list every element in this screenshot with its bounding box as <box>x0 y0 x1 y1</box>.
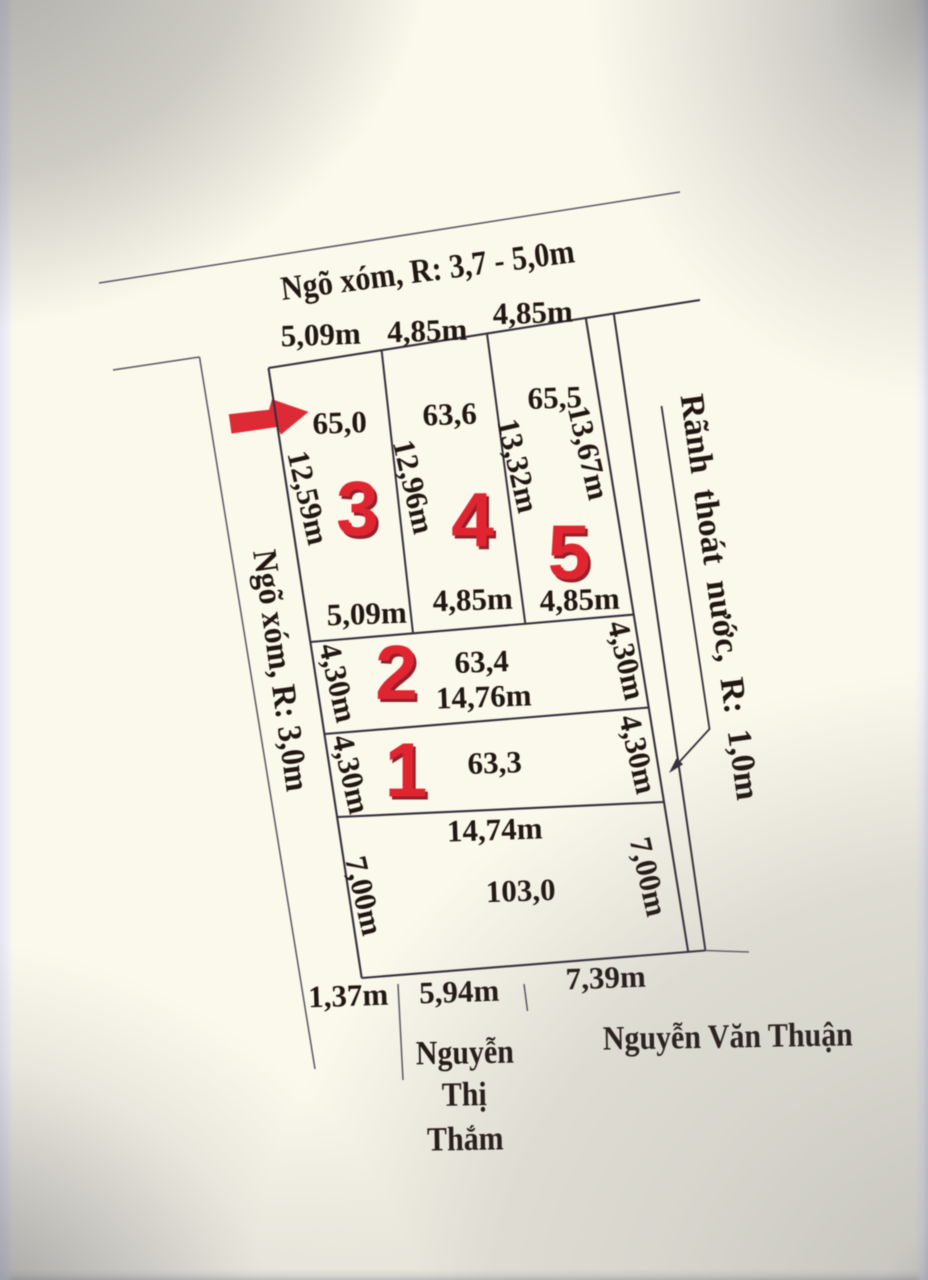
svg-text:2: 2 <box>375 630 418 716</box>
svg-text:12,96m: 12,96m <box>386 436 442 537</box>
svg-text:1,37m: 1,37m <box>308 977 389 1015</box>
svg-text:103,0: 103,0 <box>485 872 556 909</box>
svg-text:Thắm: Thắm <box>427 1119 504 1159</box>
svg-text:Thị: Thị <box>442 1074 488 1113</box>
svg-text:5,09m: 5,09m <box>280 316 361 354</box>
svg-text:4,85m: 4,85m <box>432 581 513 619</box>
svg-text:4,30m: 4,30m <box>325 731 377 817</box>
svg-text:7,39m: 7,39m <box>565 959 646 997</box>
svg-text:4: 4 <box>451 478 494 564</box>
svg-text:63,6: 63,6 <box>422 396 477 433</box>
svg-text:5,94m: 5,94m <box>419 973 500 1011</box>
svg-text:4,30m: 4,30m <box>612 711 664 797</box>
svg-text:63,4: 63,4 <box>454 643 509 680</box>
svg-text:1: 1 <box>385 728 428 814</box>
svg-text:5,09m: 5,09m <box>326 595 407 633</box>
svg-text:Nguyễn Văn Thuận: Nguyễn Văn Thuận <box>603 1015 854 1058</box>
svg-text:Ngõ xóm, R: 3,0m: Ngõ xóm, R: 3,0m <box>245 548 316 794</box>
svg-text:65,0: 65,0 <box>312 404 367 441</box>
svg-text:4,85m: 4,85m <box>539 581 620 619</box>
svg-text:4,85m: 4,85m <box>492 294 573 332</box>
svg-text:7,00m: 7,00m <box>623 834 675 920</box>
svg-text:13,32m: 13,32m <box>490 415 546 516</box>
svg-text:14,74m: 14,74m <box>446 810 543 848</box>
svg-text:7,00m: 7,00m <box>338 853 390 939</box>
svg-text:Nguyễn: Nguyễn <box>415 1032 514 1072</box>
svg-text:4,85m: 4,85m <box>387 312 468 350</box>
svg-text:4,30m: 4,30m <box>312 640 364 726</box>
svg-text:14,76m: 14,76m <box>435 677 532 715</box>
svg-text:4,30m: 4,30m <box>601 617 653 703</box>
svg-text:3: 3 <box>336 466 379 552</box>
svg-text:Rãnh thoát nước, R: 1,0m: Rãnh thoát nước, R: 1,0m <box>673 392 767 803</box>
svg-text:63,3: 63,3 <box>467 744 522 781</box>
